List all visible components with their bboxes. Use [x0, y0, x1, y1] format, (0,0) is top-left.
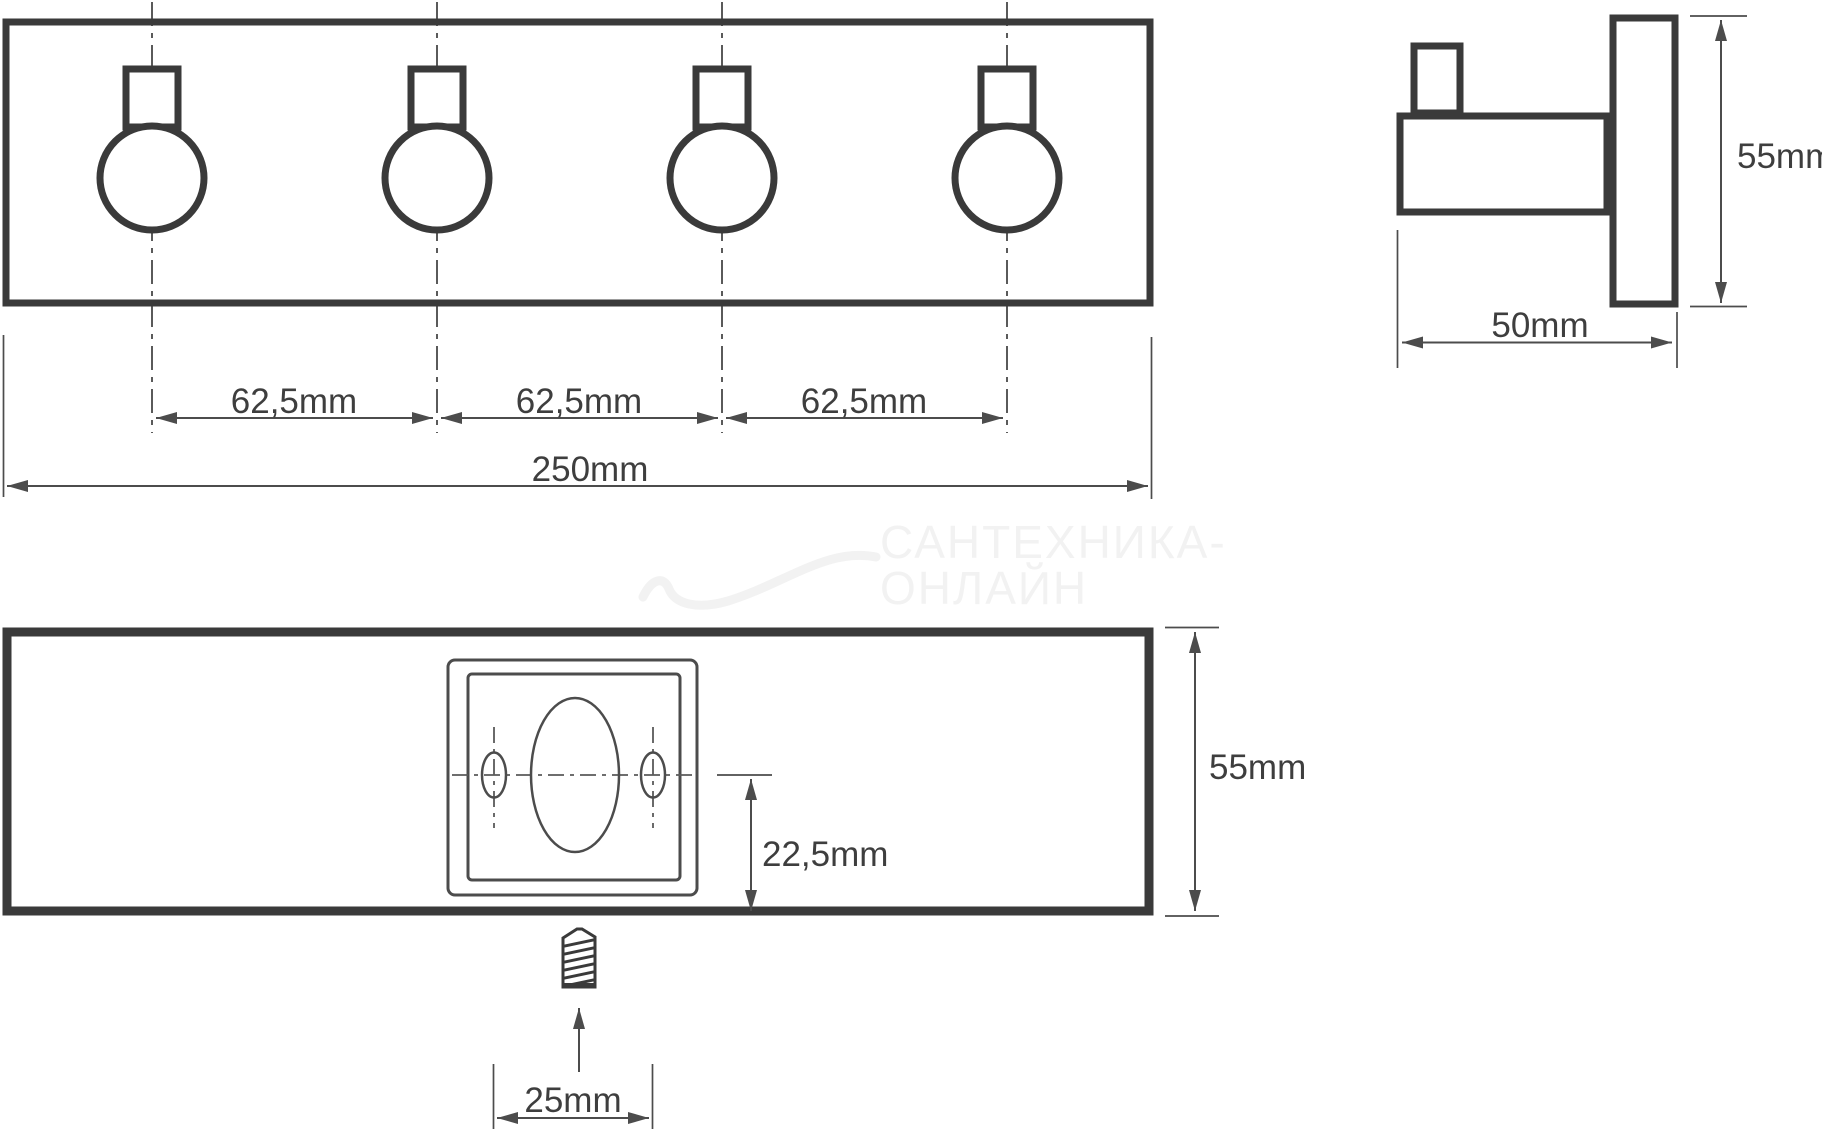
dim-label-hole-offset: 22,5mm — [762, 835, 888, 874]
watermark: САНТЕХНИКА- ОНЛАЙН — [643, 516, 1227, 614]
dim-label-back-height: 55mm — [1209, 748, 1306, 787]
front-view: 62,5mm 62,5mm 62,5mm 250mm — [4, 2, 1152, 499]
hook-3-knob — [670, 126, 774, 230]
hook-1-knob — [100, 126, 204, 230]
hook-2-knob — [385, 126, 489, 230]
side-view: 55mm 50mm — [1398, 16, 1822, 368]
hook-1 — [100, 69, 204, 230]
hook-4-knob — [955, 126, 1059, 230]
hook-rail-technical-drawing: САНТЕХНИКА- ОНЛАЙН 62,5m — [0, 0, 1822, 1129]
hook-stem-side — [1414, 46, 1460, 113]
watermark-line2: ОНЛАЙН — [880, 562, 1088, 614]
hook-4-stem — [981, 69, 1033, 127]
mount-plate-inner — [468, 674, 680, 880]
hook-arm — [1400, 116, 1607, 212]
dim-label-hook-spacing-2: 62,5mm — [516, 382, 642, 421]
technical-drawing-page: САНТЕХНИКА- ОНЛАЙН 62,5m — [0, 0, 1822, 1129]
dim-hook-spacing-3: 62,5mm — [726, 382, 1003, 421]
watermark-swoosh — [643, 555, 876, 605]
hook-3-stem — [696, 69, 748, 127]
watermark-line1: САНТЕХНИКА- — [880, 516, 1227, 568]
dim-hook-spacing-1: 62,5mm — [156, 382, 433, 421]
dim-screw-spacing: 25mm — [494, 1064, 653, 1129]
hook-1-stem — [126, 69, 178, 127]
dim-label-screw-spacing: 25mm — [524, 1081, 621, 1120]
hook-3 — [670, 69, 774, 230]
dim-side-height: 55mm — [1690, 16, 1822, 307]
hook-4 — [955, 69, 1059, 230]
dim-label-side-height: 55mm — [1737, 137, 1822, 176]
dim-label-total-width: 250mm — [532, 450, 649, 489]
dim-hole-offset: 22,5mm — [717, 775, 888, 911]
dim-hook-spacing-2: 62,5mm — [441, 382, 718, 421]
dim-label-hook-spacing-3: 62,5mm — [801, 382, 927, 421]
dim-label-hook-spacing-1: 62,5mm — [231, 382, 357, 421]
hook-2-stem — [411, 69, 463, 127]
dim-back-height: 55mm — [1165, 628, 1306, 917]
mounting-screw — [560, 929, 598, 1072]
hook-2 — [385, 69, 489, 230]
wall-plate — [1613, 18, 1675, 304]
back-view: 22,5mm 55mm — [7, 628, 1306, 1129]
dim-label-side-depth: 50mm — [1491, 306, 1588, 345]
